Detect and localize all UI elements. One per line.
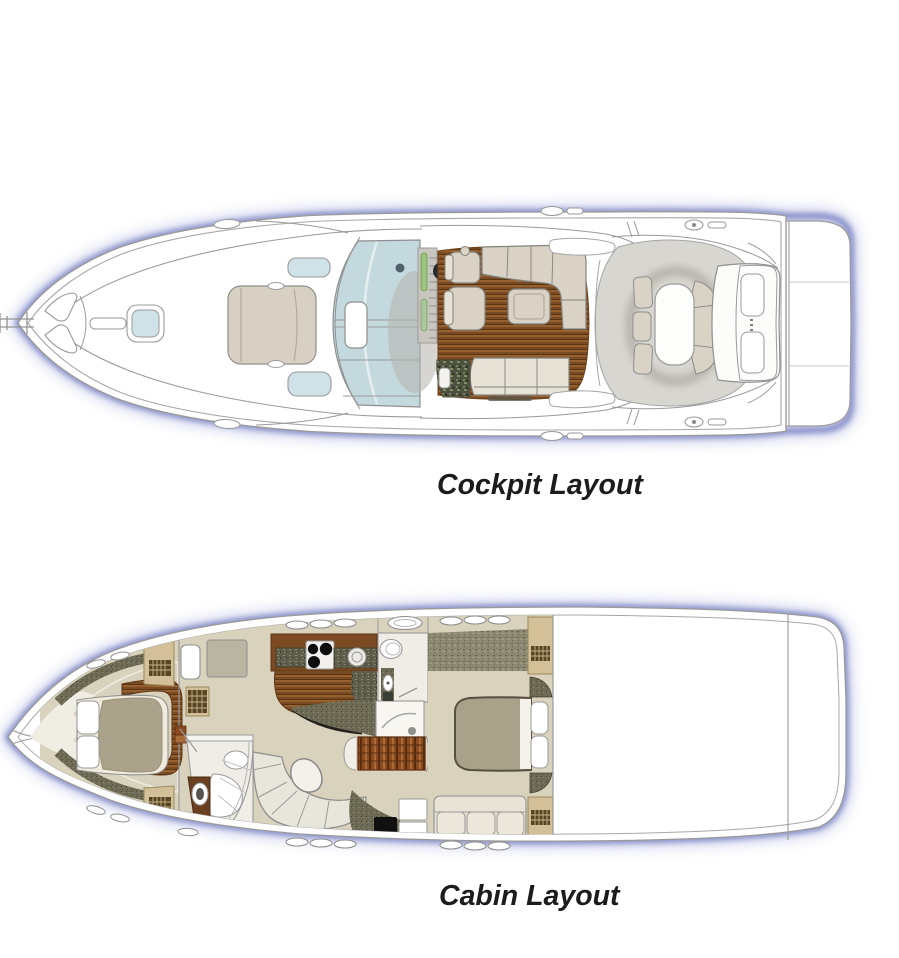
svg-text:Cockpit Layout: Cockpit Layout — [437, 469, 644, 501]
svg-text:Cabin Layout: Cabin Layout — [439, 880, 621, 912]
